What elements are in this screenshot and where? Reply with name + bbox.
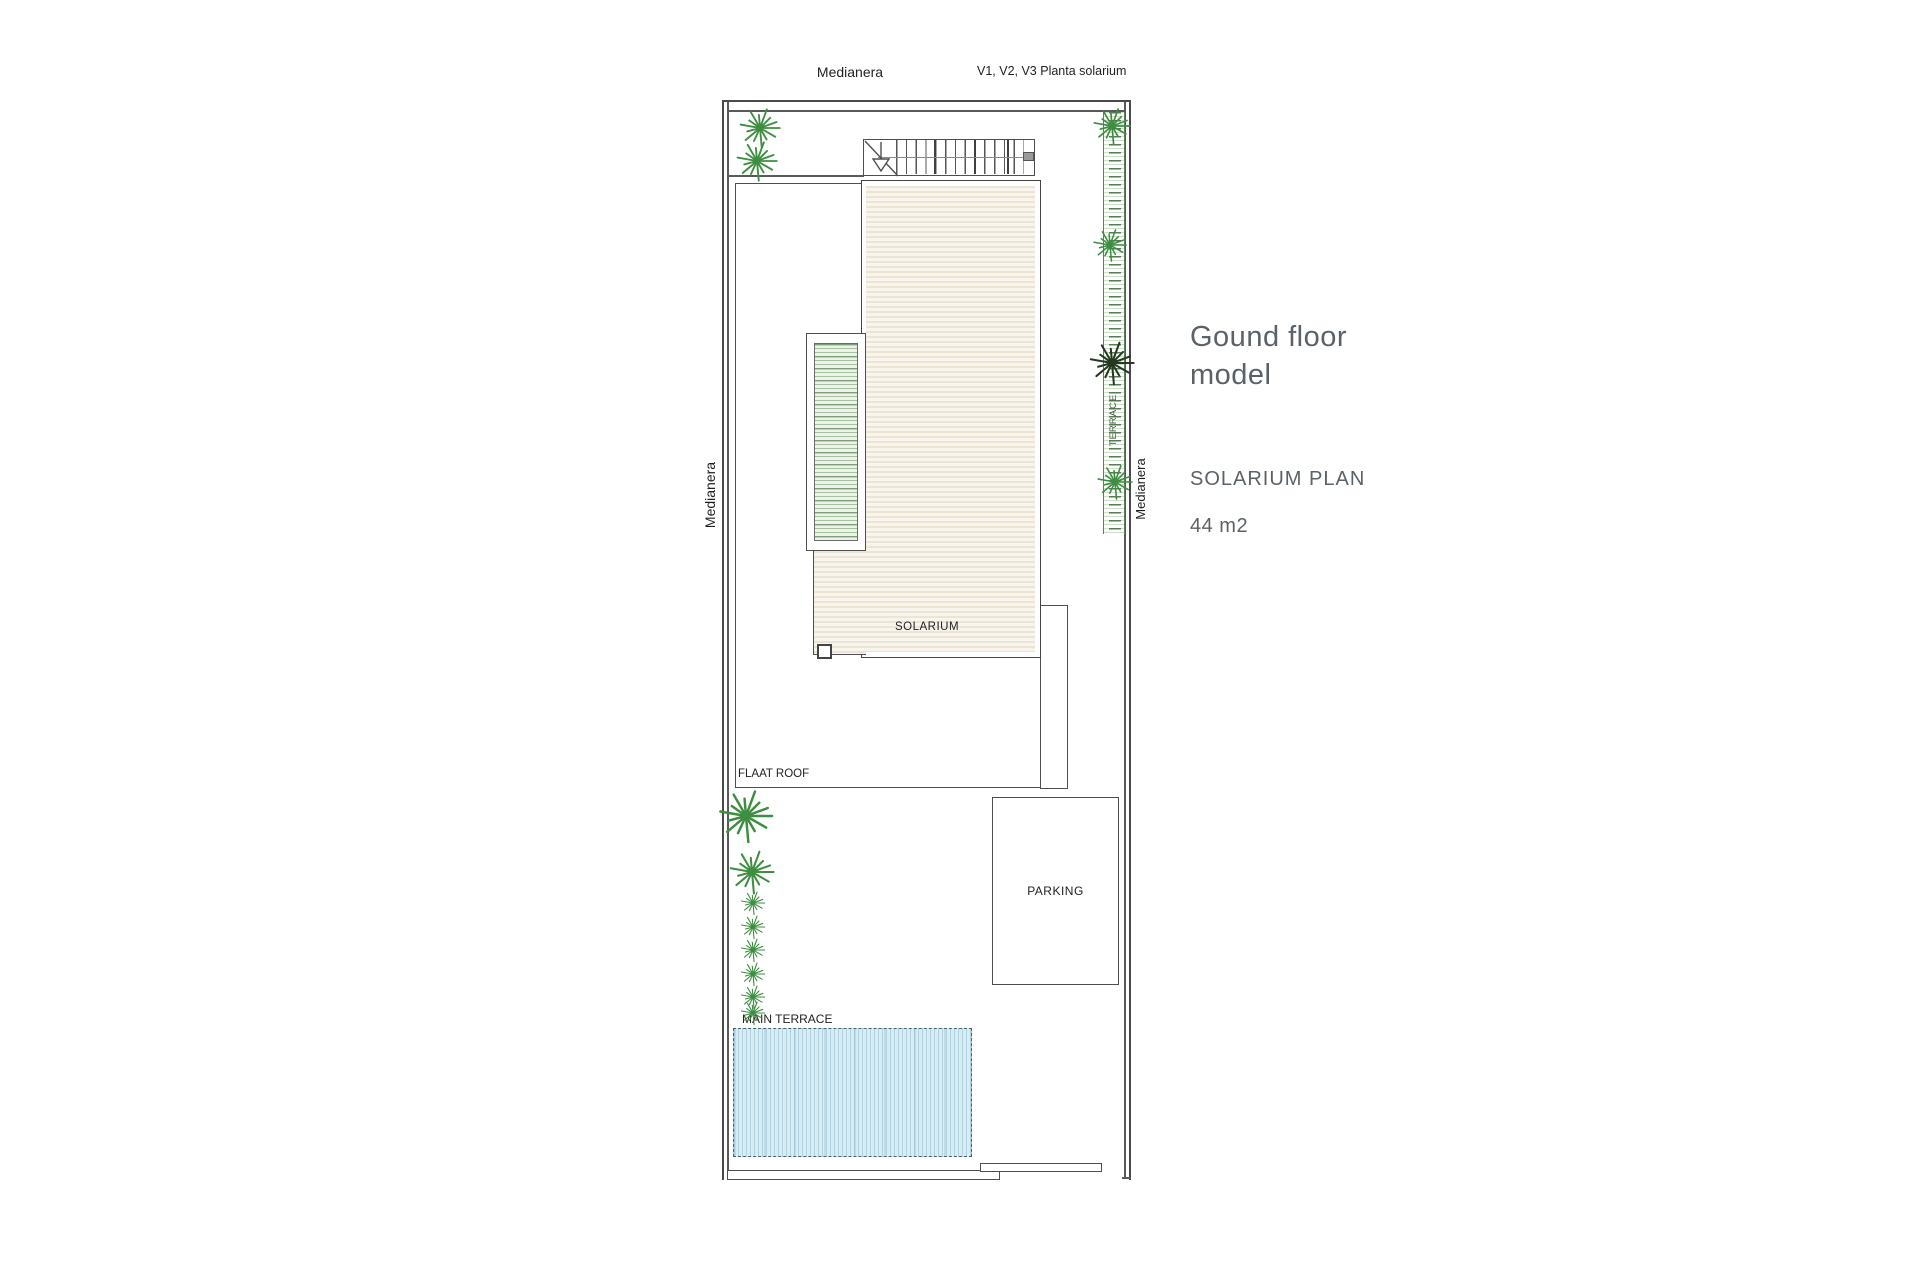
plant-icon <box>1088 339 1136 387</box>
driveway-gate <box>980 1163 1102 1172</box>
bottom-wall <box>727 1170 1000 1180</box>
label-v1v2v3: V1, V2, V3 Planta solarium <box>977 64 1126 78</box>
deck-extension <box>813 551 866 655</box>
plant-icon <box>740 890 766 916</box>
label-parking: PARKING <box>1027 884 1084 898</box>
flat-roof-step <box>1040 605 1068 789</box>
pergola-hatch <box>814 343 858 541</box>
left-inner-wall-line <box>727 102 729 1178</box>
plant-icon <box>1092 227 1128 263</box>
plant-icon <box>728 848 776 896</box>
plan-subtitle: SOLARIUM PLAN <box>1190 468 1365 491</box>
label-medianera-top: Medianera <box>800 64 900 80</box>
label-medianera-right: Medianera <box>1133 444 1147 534</box>
plant-icon <box>717 787 775 845</box>
label-terrace: TERRACE <box>1108 385 1120 455</box>
label-flat-roof: FLAAT ROOF <box>738 768 809 780</box>
plan-area: 44 m2 <box>1190 515 1248 538</box>
solarium-plan-canvas: FLAAT ROOF SOLARIUM TERRACE PARKING MAIN… <box>0 0 1920 1280</box>
page-title: Gound floor model <box>1190 318 1395 395</box>
plant-icon <box>740 937 766 963</box>
label-medianera-left: Medianera <box>702 450 718 540</box>
plant-icon <box>735 139 779 183</box>
plant-icon <box>1096 463 1134 501</box>
stair-direction-arrow <box>864 140 1036 177</box>
plant-icon <box>1092 106 1132 146</box>
chimney-square <box>817 644 832 659</box>
plant-icon <box>740 1000 766 1026</box>
parking-area: PARKING <box>992 797 1119 985</box>
solarium-deck <box>866 186 1035 652</box>
right-wall-bottom-cap <box>1122 1177 1131 1179</box>
stairs <box>863 139 1035 176</box>
label-solarium: SOLARIUM <box>862 621 992 633</box>
pool <box>733 1028 972 1157</box>
top-inner-wall-line <box>727 110 1126 112</box>
